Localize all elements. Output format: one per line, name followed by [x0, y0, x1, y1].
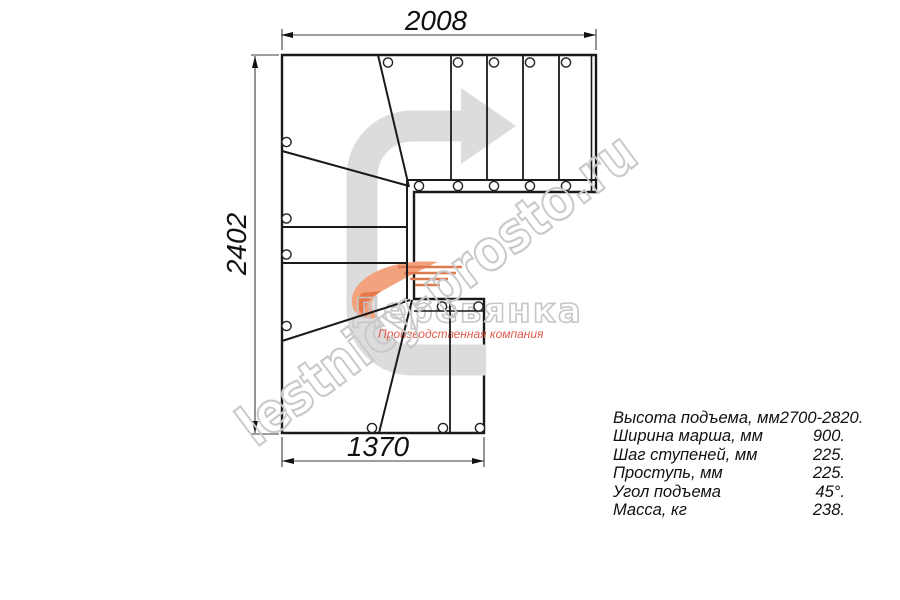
dimension-bottom-value: 1370 [347, 431, 410, 462]
dimension-bottom: 1370 [282, 431, 484, 467]
spec-value: 238. [813, 501, 845, 519]
spec-value: 900. [813, 427, 845, 445]
spec-value: 225. [813, 446, 845, 464]
spec-row-angle: Угол подъема 45°. [613, 483, 845, 501]
spec-row-step: Шаг ступеней, мм 225. [613, 446, 845, 464]
staircase-drawing-page: Деревянка Производственная компания [0, 0, 900, 600]
spec-row-height: Высота подъема, мм 2700-2820. [613, 409, 845, 427]
spec-label: Проступь, мм [613, 464, 723, 482]
spec-value: 2700-2820. [780, 409, 864, 427]
spec-value: 225. [813, 464, 845, 482]
spec-label: Угол подъема [613, 483, 721, 501]
spec-label: Шаг ступеней, мм [613, 446, 757, 464]
spec-row-flight-width: Ширина марша, мм 900. [613, 427, 845, 445]
spec-label: Высота подъема, мм [613, 409, 780, 427]
dimension-top-value: 2008 [404, 5, 468, 36]
spec-label: Масса, кг [613, 501, 687, 519]
dimension-left-value: 2402 [221, 212, 252, 276]
dimension-top: 2008 [281, 5, 596, 50]
spec-row-tread: Проступь, мм 225. [613, 464, 845, 482]
spec-row-mass: Масса, кг 238. [613, 501, 845, 519]
spec-table: Высота подъема, мм 2700-2820. Ширина мар… [613, 409, 845, 519]
spec-label: Ширина марша, мм [613, 427, 763, 445]
spec-value: 45°. [815, 483, 845, 501]
